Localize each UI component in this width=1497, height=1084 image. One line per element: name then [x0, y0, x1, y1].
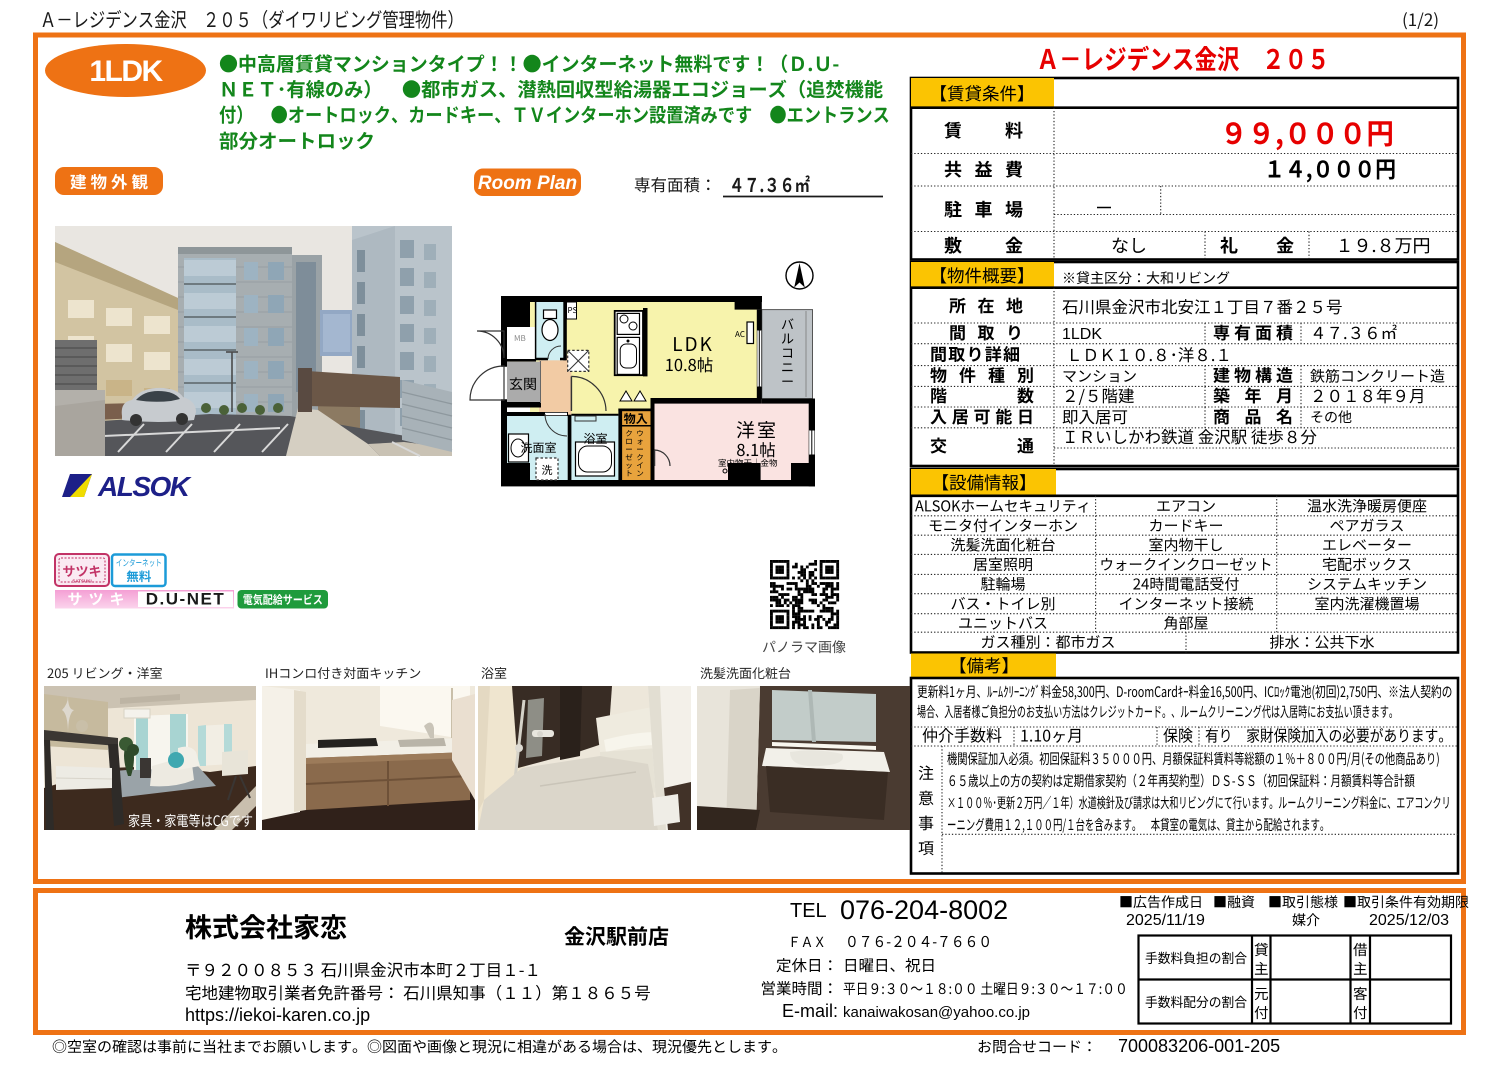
svg-text:D.U-NET: D.U-NET: [146, 590, 225, 609]
svg-text:1LDK: 1LDK: [89, 55, 163, 88]
svg-text:E-mail:: E-mail:: [782, 1001, 838, 1021]
svg-text:Room Plan: Room Plan: [478, 173, 577, 194]
svg-text:1LDK: 1LDK: [1062, 326, 1102, 343]
svg-text:700083206-001-205: 700083206-001-205: [1118, 1036, 1280, 1056]
svg-text:076-204-8002: 076-204-8002: [840, 895, 1008, 925]
svg-text:2025/11/19: 2025/11/19: [1126, 912, 1205, 929]
svg-text:https://iekoi-karen.co.jp: https://iekoi-karen.co.jp: [185, 1005, 370, 1025]
svg-text:TEL: TEL: [790, 900, 827, 922]
svg-text:2025/12/03: 2025/12/03: [1369, 912, 1449, 929]
svg-text:kanaiwakosan@yahoo.co.jp: kanaiwakosan@yahoo.co.jp: [843, 1004, 1030, 1021]
svg-text:ALSOK: ALSOK: [97, 471, 192, 502]
svg-text:SATSUKI: SATSUKI: [72, 579, 91, 584]
